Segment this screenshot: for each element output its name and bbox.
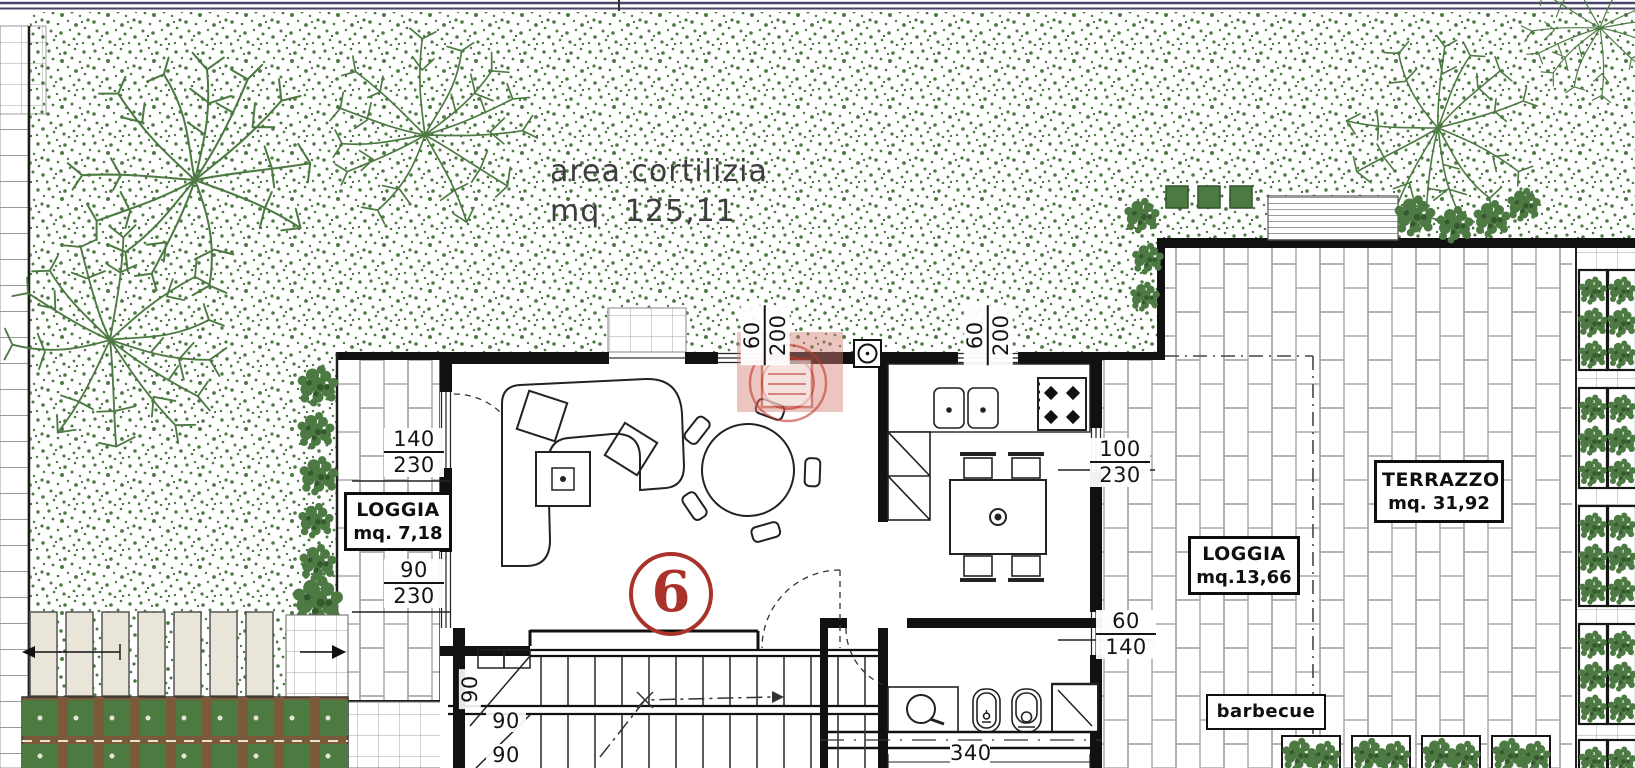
courtyard-area-label: area cortilizia mq 125,11 — [550, 152, 790, 232]
room-label-loggia-left: LOGGIA mq. 7,18 — [344, 492, 452, 551]
room-label-barbecue: barbecue — [1206, 694, 1326, 730]
dim-loggia-left-upper: 140 230 — [384, 428, 444, 477]
dim-loggia-right-upper: 100 230 — [1090, 438, 1150, 487]
courtyard-label-line2: mq 125,11 — [550, 192, 790, 232]
courtyard-label-line1: area cortilizia — [550, 152, 790, 192]
dim-entry-window: 60 200 — [741, 305, 790, 365]
dim-stair-flight-upper: 90 — [486, 710, 526, 732]
dim-stair-width: 90 — [459, 669, 481, 709]
dim-loggia-left-lower: 90 230 — [384, 559, 444, 608]
dim-kitchen-window: 60 200 — [964, 305, 1013, 365]
room-label-loggia-right: LOGGIA mq.13,66 — [1188, 536, 1300, 595]
dim-stair-flight-lower: 90 — [486, 744, 526, 766]
room-label-terrazzo: TERRAZZO mq. 31,92 — [1374, 460, 1504, 523]
dim-bath-width: 340 — [950, 742, 990, 764]
unit-number-badge: 6 — [629, 552, 713, 636]
text-overlay: area cortilizia mq 125,11 140 230 90 230… — [0, 0, 1635, 768]
floor-plan-page: area cortilizia mq 125,11 140 230 90 230… — [0, 0, 1635, 768]
dim-loggia-right-lower: 60 140 — [1096, 610, 1156, 659]
